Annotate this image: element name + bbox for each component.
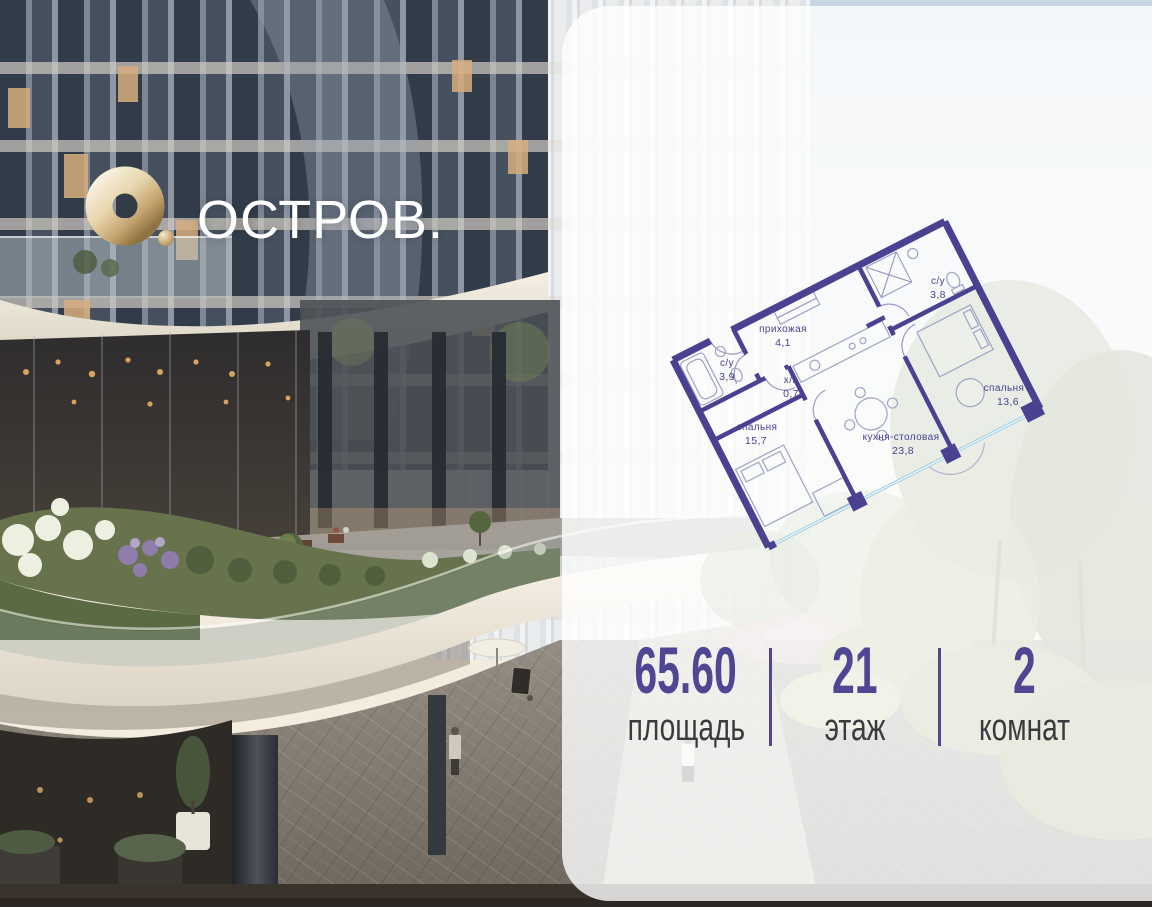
column — [428, 695, 446, 855]
stat-floor-value: 21 — [832, 642, 878, 698]
stat-area-label: площадь — [627, 712, 744, 744]
stat-floor-label: этаж — [825, 712, 886, 744]
stat-rooms-value: 2 — [1013, 642, 1036, 698]
colonnade — [300, 300, 560, 550]
info-panel — [562, 6, 1152, 901]
promo-card: прихожая 4,1 с/у 3,8 с/у 3,9 х/п 0,7 спа… — [0, 0, 1152, 907]
brand-logo: ОСТРОВ. — [85, 163, 565, 263]
stat-area: 65.60 площадь — [603, 642, 769, 745]
logo-mark-icon — [85, 163, 195, 255]
bridge-column — [232, 735, 278, 907]
stat-floor: 21 этаж — [772, 642, 938, 745]
cafe-under-bridge — [0, 720, 232, 907]
brand-name: ОСТРОВ. — [197, 189, 444, 251]
stat-rooms: 2 комнат — [941, 642, 1107, 745]
stats-row: 65.60 площадь 21 этаж 2 комнат — [603, 642, 1107, 746]
stat-rooms-label: комнат — [978, 712, 1069, 744]
stat-area-value: 65.60 — [635, 642, 737, 698]
